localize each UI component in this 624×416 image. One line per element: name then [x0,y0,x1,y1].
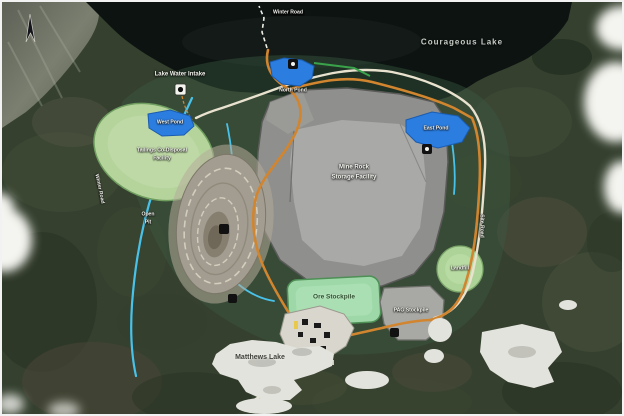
pit-marker-icon [219,224,229,234]
pag-marker-icon [390,328,399,337]
pit-south-marker-icon [228,294,237,303]
north-pond-icon [288,59,298,69]
east-pond-icon [422,144,432,154]
map-canvas [2,2,624,416]
lake-water-intake-icon [175,84,186,95]
satellite-site-map: Courageous Lake Matthews Lake Winter Roa… [0,0,624,416]
